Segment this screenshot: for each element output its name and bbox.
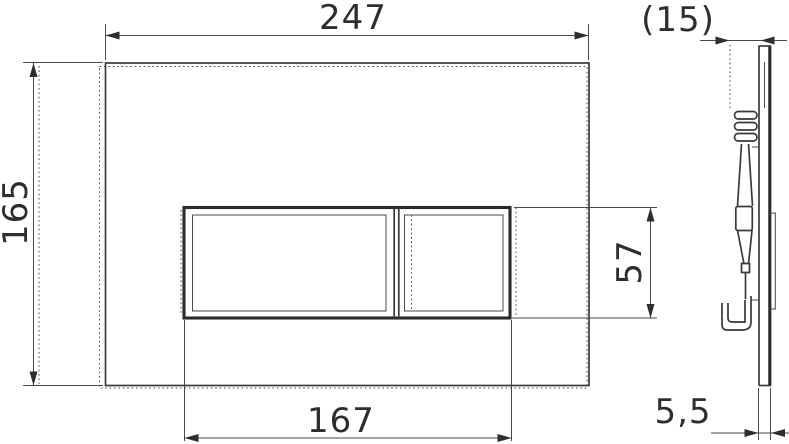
arrowhead-top xyxy=(647,208,655,222)
arrowhead-top xyxy=(30,63,38,77)
clip-arm-right xyxy=(749,144,753,206)
dim-button-height-label: 57 xyxy=(610,239,650,284)
clip-latch-box xyxy=(736,207,753,231)
clip-hook-outer xyxy=(722,296,751,330)
side-view xyxy=(722,46,775,386)
clip-spring-rib xyxy=(735,134,758,142)
arrowhead-bottom xyxy=(30,372,38,386)
dimension-button-width: 167 xyxy=(185,320,512,442)
dimension-depth: (15) xyxy=(641,0,787,108)
arrowhead-right xyxy=(498,434,512,442)
button-large xyxy=(193,215,387,311)
clip-taper-right xyxy=(749,231,753,265)
button-bezel-frame xyxy=(184,208,510,319)
button-small xyxy=(405,215,504,311)
dimension-plate-width: 247 xyxy=(106,0,589,60)
clip-foot xyxy=(742,264,750,273)
arrowhead-left xyxy=(745,429,759,437)
dim-thickness-label: 5,5 xyxy=(654,392,711,432)
clip-arm-left xyxy=(738,144,742,206)
dim-plate-height-label: 165 xyxy=(0,178,36,246)
technical-drawing-canvas: 247 165 167 57 xyxy=(0,0,789,444)
plate-back-hidden-outline xyxy=(100,67,588,389)
arrowhead-right xyxy=(575,32,589,40)
dim-plate-width-label: 247 xyxy=(319,0,387,38)
dimension-thickness: 5,5 xyxy=(654,388,789,440)
dim-depth-label: (15) xyxy=(641,0,715,40)
arrowhead-left xyxy=(106,32,120,40)
dimension-plate-height: 165 xyxy=(0,63,103,386)
arrowhead-bottom xyxy=(647,304,655,318)
arrowhead-left xyxy=(716,37,730,45)
clip-spring-rib xyxy=(735,112,758,120)
clip-spring-rib xyxy=(735,123,758,131)
mounting-clip xyxy=(722,112,759,331)
flush-plate-drawing: 247 165 167 57 xyxy=(0,0,789,444)
plate-outline xyxy=(106,63,590,386)
front-view xyxy=(100,63,590,388)
dimension-button-height: 57 xyxy=(512,208,657,319)
arrowhead-right xyxy=(761,37,775,45)
arrowhead-right xyxy=(771,429,785,437)
arrowhead-left xyxy=(185,434,199,442)
clip-taper-left xyxy=(738,231,745,265)
dim-button-width-label: 167 xyxy=(307,401,375,441)
clip-hook-inner xyxy=(728,300,745,322)
